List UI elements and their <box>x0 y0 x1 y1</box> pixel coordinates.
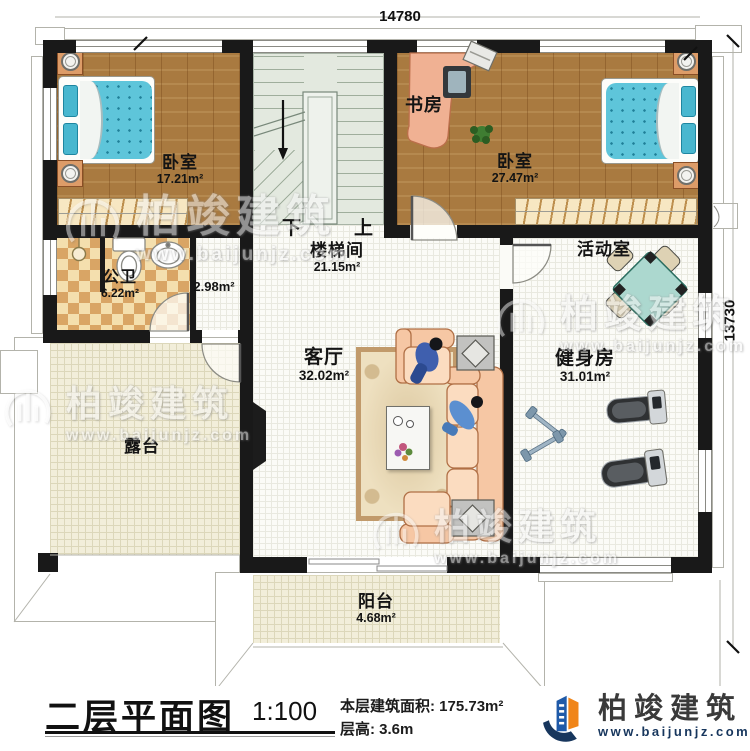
wall-mid-left <box>43 225 253 238</box>
window-sill-top <box>60 28 706 40</box>
floor-height-line: 层高: 3.6m <box>340 718 503 741</box>
wall-segment <box>447 557 513 573</box>
lamp-icon <box>677 166 696 185</box>
wall-segment <box>671 557 712 573</box>
coffee-table <box>386 406 430 470</box>
floor-area-line: 本层建筑面积: 175.73m² <box>340 695 503 718</box>
company-name: 柏竣建筑 <box>598 694 750 724</box>
room-label-study: 书房 <box>391 95 457 115</box>
nightstand <box>57 160 83 187</box>
window <box>540 557 671 573</box>
wardrobe-left <box>58 198 188 228</box>
stair-treads-right <box>337 56 383 224</box>
room-label-bedroom-left: 卧室 17.21m² <box>120 153 240 186</box>
blanket <box>656 83 679 159</box>
wall-segment <box>190 330 202 343</box>
room-label-stairwell: 楼梯间 21.15m² <box>283 241 391 274</box>
wall-stair-right <box>384 53 397 225</box>
drawing-scale: 1:100 <box>252 696 317 727</box>
lamp-icon <box>61 164 80 183</box>
window <box>540 40 665 53</box>
terrace-corner-post <box>38 553 58 572</box>
window <box>698 293 712 338</box>
wall-stair-left <box>240 40 253 343</box>
nightstand <box>673 162 699 189</box>
pillow <box>681 86 696 117</box>
stair-treads-left-top <box>254 56 304 114</box>
dimension-width: 14780 <box>365 8 435 25</box>
wall-segment <box>513 557 540 573</box>
wall-segment <box>238 330 253 343</box>
window <box>698 450 712 512</box>
roof-eave-terrace-step <box>0 350 38 394</box>
lamp-icon <box>61 52 80 71</box>
pillow <box>63 123 78 155</box>
wall-living-left <box>240 343 253 573</box>
wardrobe-right <box>515 198 697 225</box>
window-sill-left <box>31 56 43 334</box>
wall-segment <box>240 557 307 573</box>
bed-right <box>601 78 699 164</box>
company-logo: 柏竣建筑 www.baijunjz.com <box>538 688 750 744</box>
sliding-door <box>309 559 447 571</box>
floor-plan: 14780 13730 卧室 17.21m² 书房 卧室 27.47m² 公卫 … <box>0 0 750 751</box>
room-label-bedroom-right: 卧室 27.47m² <box>455 152 575 185</box>
window <box>43 88 57 160</box>
title-block: 二层平面图 1:100 本层建筑面积: 175.73m² 层高: 3.6m 柏竣… <box>0 686 750 751</box>
room-label-activity: 活动室 <box>564 240 644 259</box>
room-label-gym: 健身房 31.01m² <box>531 348 639 384</box>
wall-segment <box>367 40 417 53</box>
stairs-down-label: 下 <box>282 213 301 240</box>
window <box>76 40 222 53</box>
activity-gym-floor <box>513 238 698 557</box>
wall-left-outer <box>43 40 57 343</box>
door-opening <box>500 245 513 289</box>
lamp-icon <box>677 52 696 71</box>
stairs-up-label: 上 <box>354 213 373 240</box>
drawing-info: 本层建筑面积: 175.73m² 层高: 3.6m <box>340 695 503 741</box>
room-label-living: 客厅 32.02m² <box>270 347 378 383</box>
wall-segment <box>43 330 150 343</box>
window-sill-bottom-gym <box>538 573 673 582</box>
door-opening <box>410 225 457 238</box>
room-label-terrace: 露台 <box>106 437 178 456</box>
room-label-bathroom: 公卫 6.22m² <box>78 269 162 300</box>
window <box>253 40 367 53</box>
room-label-closet: 2.98m² <box>184 280 244 295</box>
company-logo-icon <box>538 688 592 744</box>
window <box>43 240 57 295</box>
bed-left <box>58 76 155 164</box>
pillow <box>63 85 78 117</box>
wall-segment <box>477 40 540 53</box>
room-label-balcony: 阳台 4.68m² <box>328 592 424 625</box>
company-url: www.baijunjz.com <box>598 724 750 739</box>
pillow <box>681 123 696 154</box>
title-underline-thin <box>45 736 335 737</box>
dimension-height: 13730 <box>722 291 739 351</box>
title-underline <box>45 731 335 734</box>
window <box>417 40 477 53</box>
ac-unit-box <box>712 203 738 229</box>
